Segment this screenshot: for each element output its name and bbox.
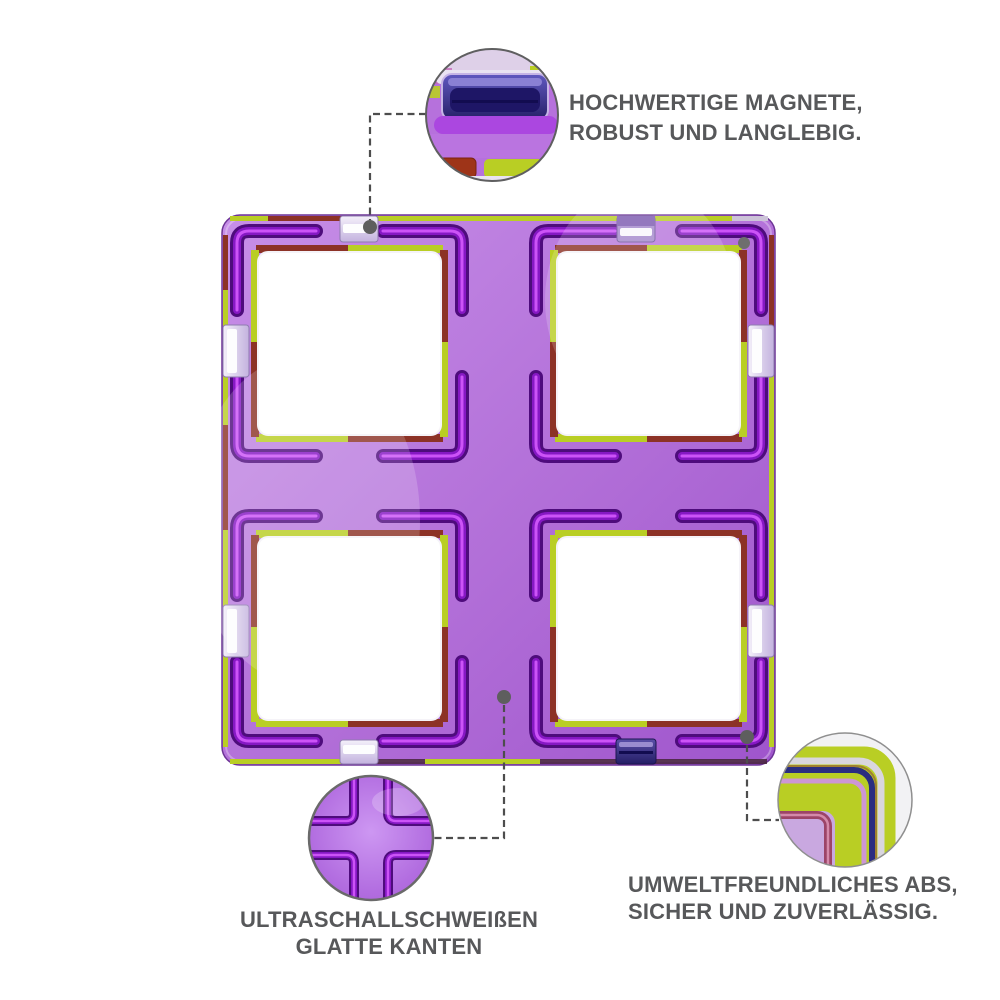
weld-dot-top — [363, 220, 377, 234]
weld-dot-bottom-center — [497, 690, 511, 704]
magnetic-tile — [190, 185, 775, 765]
caption-magnets-line2: ROBUST UND LANGLEBIG. — [569, 118, 863, 148]
window-bottom-right — [557, 537, 740, 720]
caption-abs: UMWELTFREUNDLICHES ABS, SICHER UND ZUVER… — [628, 871, 958, 925]
callout-weld-detail — [309, 776, 433, 900]
caption-welding-line1: ULTRASCHALLSCHWEIßEN — [228, 906, 550, 933]
magnet-pocket-left-upper — [223, 325, 249, 377]
weld-dot-bottom-right — [740, 730, 754, 744]
product-illustration — [0, 0, 1000, 1000]
product-annotated-image: HOCHWERTIGE MAGNETE, ROBUST UND LANGLEBI… — [0, 0, 1000, 1000]
leader-magnets — [370, 114, 426, 220]
callout-magnet-detail — [420, 49, 558, 186]
magnet-pocket-bottom-right — [616, 739, 656, 764]
magnet-pocket-bottom-left — [340, 740, 378, 764]
caption-welding: ULTRASCHALLSCHWEIßEN GLATTE KANTEN — [228, 906, 550, 960]
caption-abs-line1: UMWELTFREUNDLICHES ABS, — [628, 871, 958, 898]
caption-welding-line2: GLATTE KANTEN — [228, 933, 550, 960]
caption-abs-line2: SICHER UND ZUVERLÄSSIG. — [628, 898, 958, 925]
caption-magnets-line1: HOCHWERTIGE MAGNETE, — [569, 88, 863, 118]
magnet-pocket-right-lower — [748, 605, 774, 657]
weld-dot-top-right — [738, 237, 750, 249]
caption-magnets: HOCHWERTIGE MAGNETE, ROBUST UND LANGLEBI… — [569, 88, 863, 148]
magnet-pocket-right-upper — [748, 325, 774, 377]
